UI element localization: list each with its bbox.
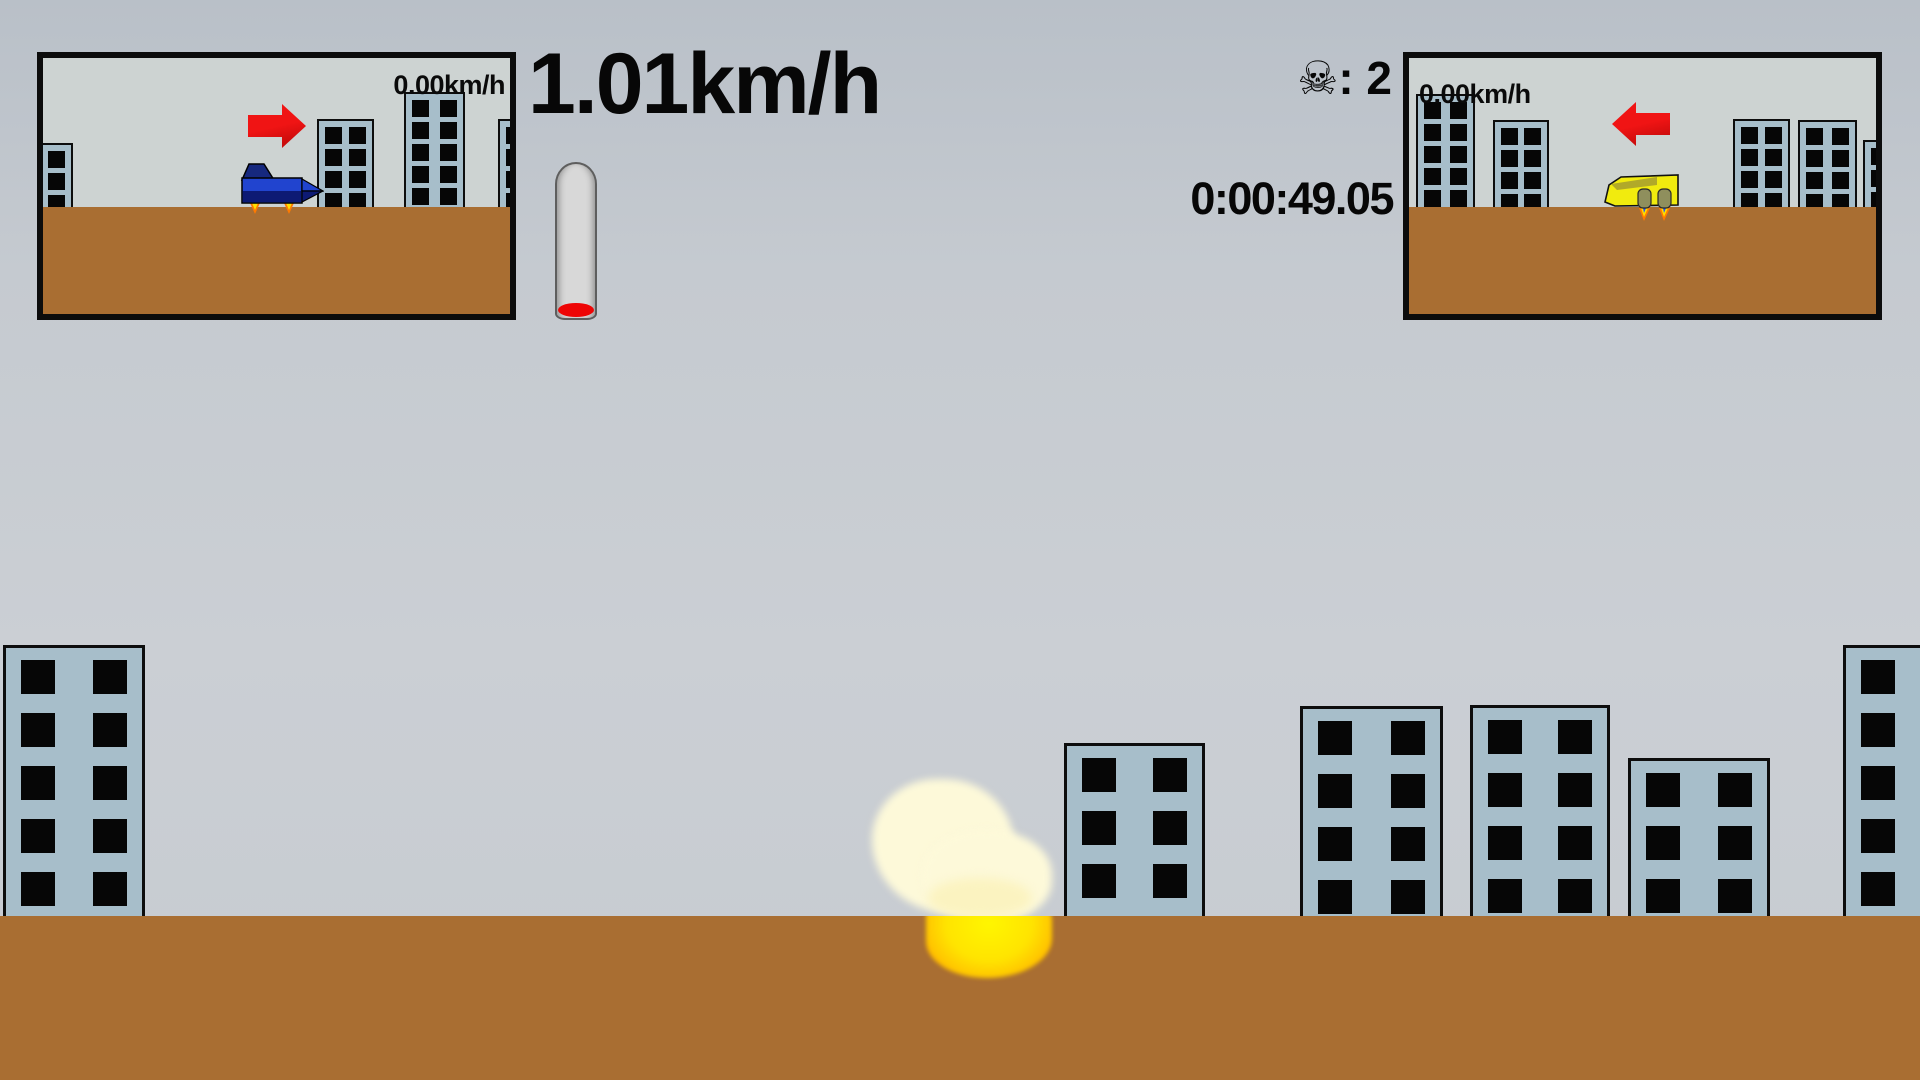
building-window <box>21 819 55 853</box>
building-window <box>1524 172 1541 189</box>
building-window <box>349 171 366 188</box>
building-window <box>48 173 65 190</box>
main-speed-readout: 1.01km/h <box>528 35 880 134</box>
building-window <box>1832 128 1849 145</box>
explosion-fireball <box>926 916 1052 978</box>
building-window <box>93 660 127 694</box>
building <box>1628 758 1770 922</box>
building-window <box>1806 172 1823 189</box>
building-window <box>93 872 127 906</box>
building-window <box>412 188 429 205</box>
building-window <box>1646 773 1680 807</box>
viewport-player2: 0.00km/h <box>1403 52 1882 320</box>
building-window <box>1765 171 1782 188</box>
building-window <box>1861 766 1895 800</box>
player1-speed-label: 0.00km/h <box>393 70 505 101</box>
building-window <box>1765 149 1782 166</box>
race-timer: 0:00:49.05 <box>1190 173 1393 225</box>
building-window <box>1741 127 1758 144</box>
building-window <box>349 149 366 166</box>
building-window <box>1082 811 1116 845</box>
building-window <box>325 149 342 166</box>
player2-speed-label: 0.00km/h <box>1419 79 1531 110</box>
building <box>37 143 73 213</box>
building-window <box>1153 758 1187 792</box>
building-window <box>440 122 457 139</box>
explosion-smoke-tint <box>928 878 1032 916</box>
building-window <box>440 166 457 183</box>
building-window <box>37 173 38 190</box>
building-window <box>1082 758 1116 792</box>
building-window <box>506 127 516 144</box>
building-window <box>1806 150 1823 167</box>
fuel-gauge <box>555 162 597 320</box>
building-window <box>1424 124 1441 141</box>
building-window <box>21 713 55 747</box>
building-window <box>1318 774 1352 808</box>
building-window <box>1391 827 1425 861</box>
building-window <box>1153 864 1187 898</box>
minimap-ground <box>43 207 510 314</box>
building-window <box>325 127 342 144</box>
building-window <box>1424 146 1441 163</box>
viewport-player1: 0.00km/h <box>37 52 516 320</box>
building-window <box>1861 819 1895 853</box>
building-window <box>506 149 516 166</box>
building-window <box>37 151 38 168</box>
building-window <box>1488 720 1522 754</box>
building-window <box>1318 827 1352 861</box>
building-window <box>1646 879 1680 913</box>
arrow-left-icon <box>1612 100 1670 148</box>
building-window <box>93 819 127 853</box>
ground <box>0 916 1920 1080</box>
explosion-smoke-blob <box>922 830 1052 916</box>
building-window <box>506 171 516 188</box>
building-window <box>1391 774 1425 808</box>
building-window <box>1501 172 1518 189</box>
building-window <box>325 171 342 188</box>
building-window <box>1871 170 1882 187</box>
building <box>1416 94 1475 213</box>
building-window <box>1806 128 1823 145</box>
building <box>1300 706 1443 922</box>
building-window <box>1718 879 1752 913</box>
building-window <box>1646 826 1680 860</box>
building-window <box>1153 811 1187 845</box>
building-window <box>1501 128 1518 145</box>
building-window <box>1832 172 1849 189</box>
skull-icon: ☠ <box>1297 52 1338 104</box>
building <box>3 645 145 922</box>
building-window <box>1391 880 1425 914</box>
building-window <box>1450 168 1467 185</box>
building <box>1843 645 1920 922</box>
building-window <box>1450 190 1467 207</box>
building-window <box>1450 124 1467 141</box>
building-window <box>1524 128 1541 145</box>
building <box>404 92 465 213</box>
death-count-value: : 2 <box>1338 52 1392 104</box>
building-window <box>1832 150 1849 167</box>
building-window <box>1765 127 1782 144</box>
player1-jet-sprite <box>240 163 324 215</box>
building <box>1493 120 1549 213</box>
building-window <box>1424 168 1441 185</box>
building-window <box>1488 773 1522 807</box>
building-window <box>1741 149 1758 166</box>
building-window <box>1558 720 1592 754</box>
building <box>498 119 516 213</box>
building-window <box>1558 826 1592 860</box>
building-window <box>1391 721 1425 755</box>
building-window <box>349 127 366 144</box>
building <box>1470 705 1610 922</box>
building <box>1798 120 1857 213</box>
building-window <box>412 144 429 161</box>
building-window <box>440 188 457 205</box>
minimap-ground <box>1409 207 1876 314</box>
building-window <box>1501 150 1518 167</box>
building-window <box>1318 880 1352 914</box>
building <box>1064 743 1205 922</box>
building-window <box>1718 826 1752 860</box>
building-window <box>93 766 127 800</box>
building-window <box>48 151 65 168</box>
building-window <box>1082 864 1116 898</box>
building-window <box>1488 879 1522 913</box>
building-window <box>93 713 127 747</box>
building <box>1733 119 1790 213</box>
fuel-level-indicator <box>558 303 594 317</box>
building <box>1863 140 1882 213</box>
building-window <box>1524 150 1541 167</box>
building-window <box>37 195 38 212</box>
game-screen: 0.00km/h 0.00km/h 1.01km/h ☠: 2 0:00:49.… <box>0 0 1920 1080</box>
building-window <box>412 100 429 117</box>
building-window <box>1558 879 1592 913</box>
building-window <box>440 100 457 117</box>
building-window <box>1861 660 1895 694</box>
building-window <box>1558 773 1592 807</box>
building-window <box>1861 713 1895 747</box>
building-window <box>1450 146 1467 163</box>
arrow-right-icon <box>248 102 306 150</box>
player2-hovercraft-sprite <box>1603 172 1685 222</box>
building-window <box>1741 171 1758 188</box>
building-window <box>1871 148 1882 165</box>
building-window <box>1861 872 1895 906</box>
building-window <box>1424 190 1441 207</box>
building-window <box>1718 773 1752 807</box>
building-window <box>1488 826 1522 860</box>
building-window <box>21 660 55 694</box>
death-counter: ☠: 2 <box>1297 51 1392 105</box>
building-window <box>412 166 429 183</box>
building-window <box>440 144 457 161</box>
building-window <box>412 122 429 139</box>
building-window <box>1318 721 1352 755</box>
building-window <box>21 872 55 906</box>
building <box>317 119 374 213</box>
building-window <box>21 766 55 800</box>
explosion-smoke-blob <box>872 779 1014 913</box>
